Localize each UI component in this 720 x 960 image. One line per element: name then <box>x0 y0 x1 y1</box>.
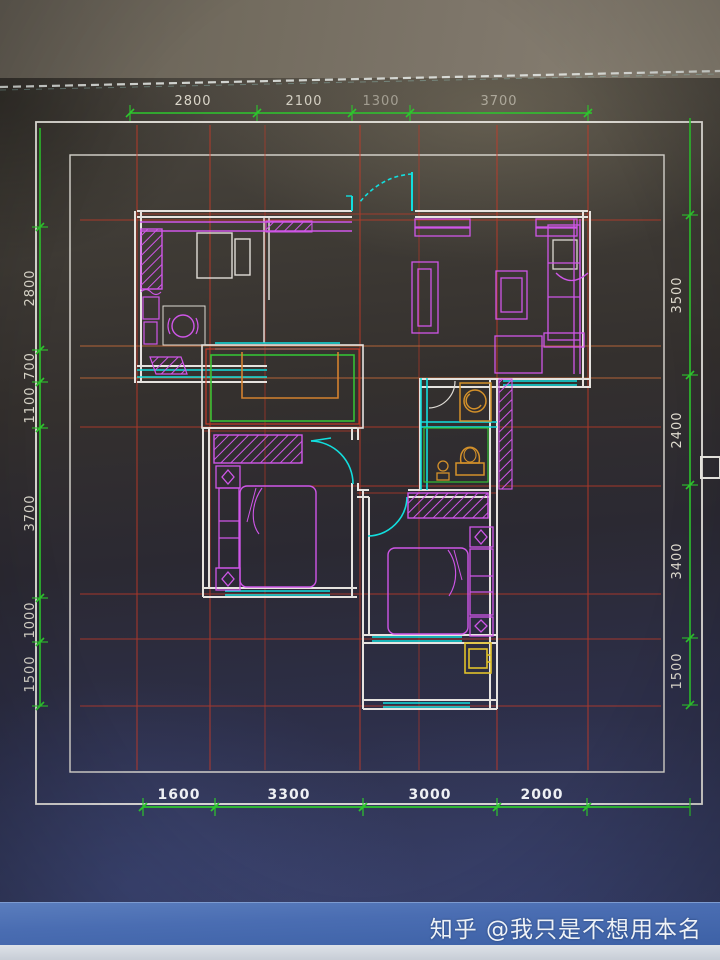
photo-bottom-band <box>0 945 720 960</box>
dim-label-left-5: 1500 <box>23 655 38 692</box>
dim-label-right-3: 1500 <box>670 652 685 689</box>
basin <box>437 461 449 480</box>
sofa <box>495 219 588 374</box>
dim-label-top-2: 1300 <box>362 94 399 109</box>
watermark-bar: 知乎 @我只是不想用本名 <box>0 902 720 946</box>
dim-label-bottom-1: 3300 <box>268 787 311 803</box>
bathroom-door <box>429 381 455 408</box>
cabinet <box>197 233 250 278</box>
desk-and-chair <box>141 290 205 346</box>
dim-label-right-2: 3400 <box>670 542 685 579</box>
second-bedroom <box>388 493 493 636</box>
screen-edge-dashed-line <box>0 71 720 90</box>
balcony <box>465 643 491 673</box>
top-cabinet-band <box>140 221 352 232</box>
cad-floor-plan: 2800 2100 1300 3700 1600 3300 3000 2000 <box>0 0 720 960</box>
dim-label-left-0: 2800 <box>23 269 38 306</box>
tv-cabinet <box>412 219 470 333</box>
dim-label-left-3: 3700 <box>23 494 38 531</box>
dim-label-left-4: 1000 <box>23 601 38 638</box>
balcony-washer <box>465 643 491 673</box>
washing-machine <box>460 383 491 421</box>
master-bedroom-door <box>311 438 353 484</box>
dim-label-bottom-3: 2000 <box>521 787 564 803</box>
top-dimension-labels: 2800 2100 1300 3700 <box>174 94 517 109</box>
watermark-brand: 知乎 <box>430 917 478 943</box>
second-wardrobe <box>408 493 488 518</box>
dim-label-bottom-2: 3000 <box>409 787 452 803</box>
master-bed <box>240 486 316 587</box>
dim-label-top-0: 2800 <box>174 94 211 109</box>
entry-door <box>346 172 412 211</box>
dim-label-top-3: 3700 <box>480 94 517 109</box>
bathroom <box>424 383 491 482</box>
dim-label-bottom-0: 1600 <box>158 787 201 803</box>
second-bedroom-door <box>368 497 407 536</box>
dim-label-right-0: 3500 <box>670 276 685 313</box>
coffee-table <box>496 271 527 319</box>
study-room-furniture <box>140 221 352 374</box>
dim-label-left-2: 1100 <box>23 386 38 423</box>
duct-shaft <box>499 379 512 489</box>
toilet <box>456 447 484 475</box>
nightstands-dresser <box>216 466 240 590</box>
dim-label-left-1: 700 <box>23 352 38 380</box>
master-wardrobe <box>214 435 302 463</box>
living-room <box>412 219 588 374</box>
bottom-dimension-labels: 1600 3300 3000 2000 <box>158 787 564 803</box>
bookshelf <box>141 229 162 289</box>
right-dimension-labels: 3500 2400 3400 1500 <box>670 276 685 689</box>
watermark: 知乎 @我只是不想用本名 <box>430 910 702 944</box>
bay-window <box>202 345 363 428</box>
dim-label-right-1: 2400 <box>670 411 685 448</box>
doormat <box>150 357 187 374</box>
dim-label-top-1: 2100 <box>285 94 322 109</box>
second-bed <box>388 548 468 634</box>
right-border-box <box>701 457 720 478</box>
watermark-author: @我只是不想用本名 <box>486 917 702 943</box>
